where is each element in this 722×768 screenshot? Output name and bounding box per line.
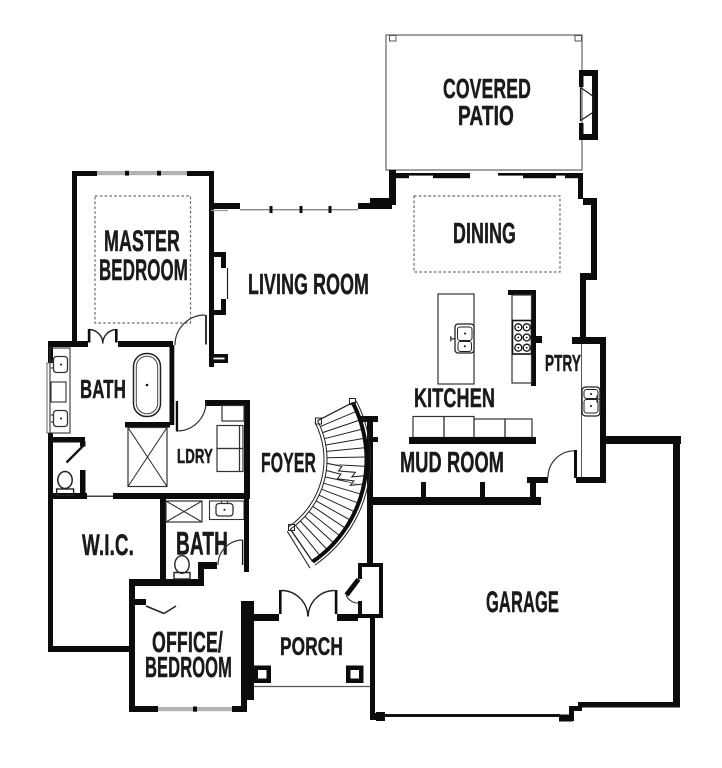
svg-text:LIVING ROOM: LIVING ROOM xyxy=(248,269,369,301)
svg-text:GARAGE: GARAGE xyxy=(486,586,559,619)
svg-text:KITCHEN: KITCHEN xyxy=(414,383,495,413)
svg-text:BEDROOM: BEDROOM xyxy=(99,254,188,287)
svg-text:W.I.C.: W.I.C. xyxy=(82,529,134,562)
svg-text:MUD ROOM: MUD ROOM xyxy=(400,447,504,479)
svg-text:DINING: DINING xyxy=(453,218,516,250)
svg-text:PATIO: PATIO xyxy=(458,100,514,131)
svg-text:BATH: BATH xyxy=(80,374,126,404)
svg-text:LDRY: LDRY xyxy=(177,446,213,468)
svg-text:PTRY: PTRY xyxy=(545,350,581,376)
svg-text:PORCH: PORCH xyxy=(280,633,343,661)
svg-text:FOYER: FOYER xyxy=(261,447,316,478)
svg-text:BEDROOM: BEDROOM xyxy=(145,652,232,684)
